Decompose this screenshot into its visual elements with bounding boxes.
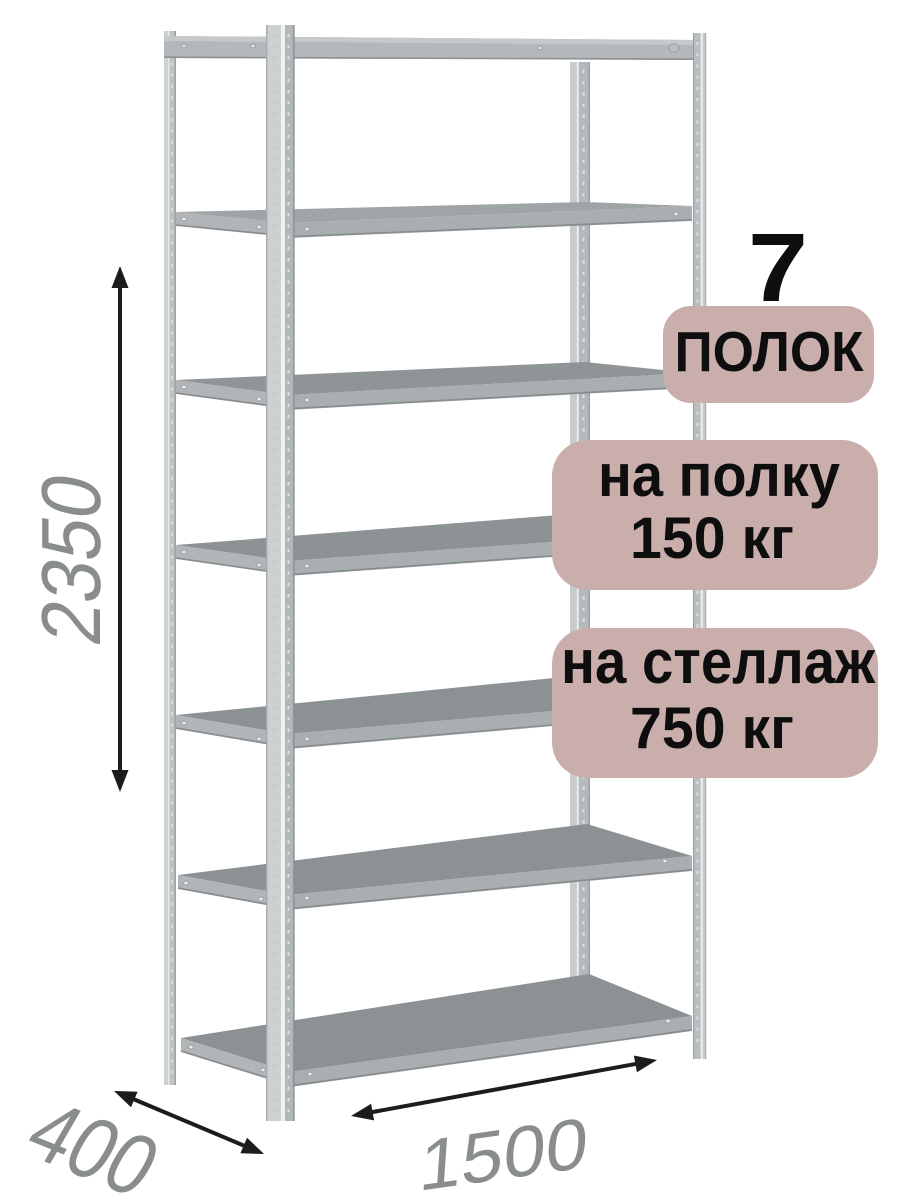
- svg-text:на полку: на полку: [598, 442, 841, 509]
- svg-text:2350: 2350: [24, 467, 118, 652]
- svg-text:7: 7: [748, 213, 808, 322]
- svg-text:на стеллаж: на стеллаж: [561, 628, 876, 697]
- svg-text:ПОЛОК: ПОЛОК: [675, 320, 864, 384]
- svg-text:150 кг: 150 кг: [630, 506, 794, 571]
- svg-text:750 кг: 750 кг: [630, 696, 794, 761]
